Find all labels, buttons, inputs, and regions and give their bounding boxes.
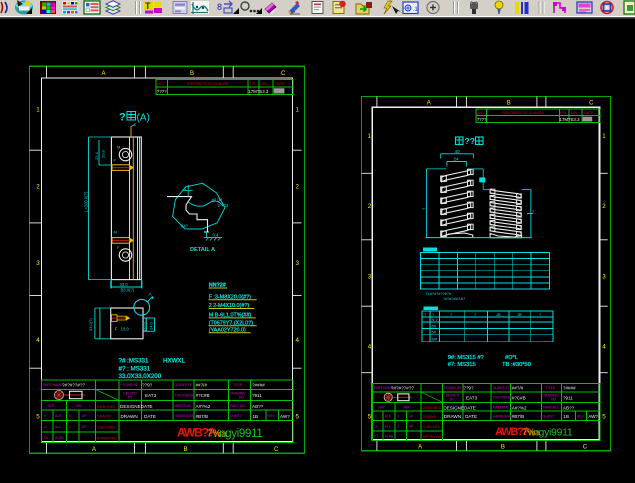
svg-text:APPROVED: APPROVED xyxy=(423,435,443,439)
svg-text:ALE: ALE xyxy=(55,414,62,418)
svg-text:AW?: AW? xyxy=(280,414,290,419)
svg-text:ALL: ALL xyxy=(55,425,61,429)
svg-text:(A): (A) xyxy=(137,113,150,124)
svg-text:8: 8 xyxy=(217,2,222,12)
svg-text:1: 1 xyxy=(296,107,300,114)
svg-text:.XX: .XX xyxy=(43,436,49,440)
svg-text:REV: REV xyxy=(577,414,585,418)
svg-text:.2: .2 xyxy=(396,424,399,428)
svg-text:##?/#: ##?/# xyxy=(196,383,208,388)
svg-text:?# :MS331: ?# :MS331 xyxy=(119,357,149,364)
svg-text:AF: AF xyxy=(82,425,86,429)
svg-text:3: 3 xyxy=(36,260,40,267)
svg-text:M: M xyxy=(114,230,117,235)
svg-text:JB: JB xyxy=(496,312,501,317)
svg-text:L=200.0(?): L=200.0(?) xyxy=(83,191,88,212)
svg-text:REV: REV xyxy=(268,414,276,418)
svg-text:CHECKED: CHECKED xyxy=(423,425,441,429)
svg-text:PART NO.: PART NO. xyxy=(543,405,559,409)
svg-text:EAT3: EAT3 xyxy=(145,393,157,398)
svg-text:APV: APV xyxy=(570,111,578,115)
svg-text:EAT3: EAT3 xyxy=(466,395,478,400)
svg-text:SHEET: SHEET xyxy=(543,414,554,418)
svg-text:ALBB: ALBB xyxy=(385,435,394,439)
svg-text:MM: MM xyxy=(76,404,82,408)
svg-text:.XX: .XX xyxy=(373,435,379,439)
svg-text:DESIGNEDATE: DESIGNEDATE xyxy=(443,405,476,410)
svg-text:SHEET: SHEET xyxy=(230,414,241,418)
svg-text:AW?: AW? xyxy=(588,414,598,419)
svg-text:#B7/B: #B7/B xyxy=(512,414,525,419)
svg-text:?#?#??#??: ?#?#??#?? xyxy=(391,386,414,391)
svg-text:C: C xyxy=(583,445,588,451)
svg-text:10.0: 10.0 xyxy=(121,327,130,332)
svg-text:M#: M# xyxy=(432,337,438,342)
svg-text:FOUND HE: FOUND HE xyxy=(444,386,462,390)
svg-text:9#: MS315 #?: 9#: MS315 #? xyxy=(448,355,485,361)
svg-text:TB :#30*50: TB :#30*50 xyxy=(502,362,531,368)
svg-text:DESIGNEDATE: DESIGNEDATE xyxy=(120,404,153,409)
svg-text:HXWXL: HXWXL xyxy=(163,357,186,364)
svg-text:ALE: ALE xyxy=(385,414,392,418)
svg-text:NO.: NO. xyxy=(239,395,245,399)
svg-text:40: 40 xyxy=(455,149,461,154)
svg-text:DRAWN: DRAWN xyxy=(121,414,138,419)
svg-text:5: 5 xyxy=(602,414,606,421)
svg-text:DRAWN: DRAWN xyxy=(444,414,461,419)
svg-text:.2: .2 xyxy=(68,425,71,429)
svg-text:MM: MM xyxy=(404,405,410,409)
svg-text:.3: .3 xyxy=(44,425,47,429)
svg-text:QUANTITY: QUANTITY xyxy=(175,383,193,387)
svg-text:T: T xyxy=(145,1,151,11)
svg-text:PART NO.: PART NO. xyxy=(230,404,246,408)
svg-text:?####: ?#### xyxy=(252,383,265,388)
svg-text:3: 3 xyxy=(296,260,300,267)
svg-text:SHT: SHT xyxy=(48,404,55,408)
svg-text:A#?%2: A#?%2 xyxy=(196,404,211,409)
svg-text:A#?%2: A#?%2 xyxy=(512,405,527,410)
svg-text:MATERIAL: MATERIAL xyxy=(175,404,192,408)
svg-text:CONTENTS OF CHANGE: CONTENTS OF CHANGE xyxy=(187,82,230,86)
svg-text:??9?: ??9? xyxy=(142,383,153,388)
svg-text:A: A xyxy=(149,292,152,297)
svg-text:SHT: SHT xyxy=(378,405,385,409)
svg-text:APV: APV xyxy=(260,82,268,86)
svg-text:B: B xyxy=(507,101,511,107)
svg-text:ALL: ALL xyxy=(385,424,391,428)
svg-text:N ?: N ? xyxy=(432,317,439,322)
svg-text:17M?S3.3: 17M?S3.3 xyxy=(248,89,269,94)
svg-text:2: 2 xyxy=(602,203,606,210)
svg-text:5#: 5# xyxy=(432,323,437,328)
svg-text:.1: .1 xyxy=(413,6,419,13)
svg-text:F: F xyxy=(134,123,137,128)
svg-text:NO.: NO. xyxy=(551,397,557,401)
svg-text:2-?03: 2-?03 xyxy=(218,203,229,208)
svg-text:?911: ?911 xyxy=(252,393,262,398)
svg-text:ngyi9911: ngyi9911 xyxy=(533,427,573,439)
svg-text:DATE: DATE xyxy=(465,414,477,419)
svg-text:#0.04: #0.04 xyxy=(212,198,223,203)
svg-text:25.4: 25.4 xyxy=(94,151,99,160)
svg-text:C: C xyxy=(589,101,594,107)
svg-text:F: F xyxy=(115,327,118,332)
svg-text:A: A xyxy=(418,445,422,451)
svg-text:1B: 1B xyxy=(563,414,569,419)
svg-text:AF: AF xyxy=(409,424,413,428)
svg-text:ngyi9911: ngyi9911 xyxy=(219,428,262,440)
svg-text:33.0(?): 33.0(?) xyxy=(88,318,93,331)
svg-text:??9?: ??9? xyxy=(463,386,474,391)
svg-text:TITLE: TITLE xyxy=(546,386,556,390)
svg-text:3: 3 xyxy=(368,273,372,280)
svg-text:BY: BY xyxy=(128,395,133,399)
svg-text:????: ???? xyxy=(477,117,487,122)
svg-text:#?C#B: #?C#B xyxy=(512,395,526,400)
svg-text:B3.0(?): B3.0(?) xyxy=(121,288,135,293)
svg-text:??: ?? xyxy=(465,136,475,146)
svg-text:#D*L: #D*L xyxy=(505,355,519,361)
svg-text:?: ? xyxy=(119,112,126,124)
svg-text:NO.: NO. xyxy=(158,82,164,86)
svg-text:C: C xyxy=(281,71,286,77)
svg-text:PART NAME: PART NAME xyxy=(43,383,63,387)
svg-text:24.0: 24.0 xyxy=(149,321,154,330)
svg-text:BY: BY xyxy=(450,397,455,401)
svg-text:?#?#??#??: ?#?#??#?? xyxy=(62,383,85,388)
svg-text:#? : MS331: #? : MS331 xyxy=(119,366,151,373)
svg-text:DATE: DATE xyxy=(584,111,594,115)
svg-text:1: 1 xyxy=(36,107,40,114)
svg-text:5: 5 xyxy=(36,414,40,421)
svg-text:P.R.: P.R. xyxy=(560,111,567,115)
svg-text:QUANTITY: QUANTITY xyxy=(493,386,511,390)
svg-text:0.4: 0.4 xyxy=(213,233,219,238)
svg-text:?911: ?911 xyxy=(563,395,573,400)
svg-text:AP: AP xyxy=(82,414,87,418)
svg-text:MATERIAL: MATERIAL xyxy=(493,405,510,409)
svg-text:TITLE: TITLE xyxy=(233,383,243,387)
svg-text:1: 1 xyxy=(602,133,606,140)
svg-text:4: 4 xyxy=(36,337,40,344)
svg-text:HARDNESS: HARDNESS xyxy=(175,414,195,418)
svg-text:DATE: DATE xyxy=(276,82,286,86)
svg-text:4: 4 xyxy=(368,344,372,351)
svg-text:2: 2 xyxy=(296,183,300,190)
svg-text:DATE: DATE xyxy=(144,414,156,419)
svg-text:4: 4 xyxy=(602,344,606,351)
svg-text:.3: .3 xyxy=(374,424,377,428)
svg-text:B: B xyxy=(190,71,194,77)
svg-text:##?/#: ##?/# xyxy=(512,386,524,391)
svg-text:CHECKED: CHECKED xyxy=(97,426,115,430)
svg-text:DESIGNED: DESIGNED xyxy=(423,406,442,410)
svg-text:20.8: 20.8 xyxy=(101,149,106,158)
svg-text:DRAWN: DRAWN xyxy=(97,415,111,419)
svg-text:APPROVED: APPROVED xyxy=(97,437,117,441)
svg-text:M: M xyxy=(117,145,120,150)
svg-text:HARDNESS: HARDNESS xyxy=(493,414,513,418)
svg-text:A: A xyxy=(92,447,96,453)
svg-text:5: 5 xyxy=(296,414,300,421)
svg-text:#?C#B: #?C#B xyxy=(196,393,210,398)
svg-text:#7: MS315: #7: MS315 xyxy=(448,362,476,368)
svg-text:A: A xyxy=(427,101,431,107)
svg-text:AB??: AB?? xyxy=(563,405,575,410)
svg-text:17M?S3.3: 17M?S3.3 xyxy=(560,117,581,122)
svg-text:CONTENTS OF CHANGE: CONTENTS OF CHANGE xyxy=(502,111,545,115)
svg-text:DETAIL A: DETAIL A xyxy=(190,247,215,253)
svg-text:????: ???? xyxy=(157,89,167,94)
svg-text:5: 5 xyxy=(368,414,372,421)
svg-text:2: 2 xyxy=(36,183,40,190)
svg-text:5#: 5# xyxy=(432,329,437,334)
svg-text:THICKNESS: THICKNESS xyxy=(175,394,195,398)
svg-text:DESIGNED: DESIGNED xyxy=(97,405,116,409)
svg-text:AB??: AB?? xyxy=(252,404,264,409)
svg-text:B: B xyxy=(501,445,505,451)
svg-text:C: C xyxy=(274,447,279,453)
svg-text:FOUND HE: FOUND HE xyxy=(121,383,139,387)
svg-text:A: A xyxy=(102,71,106,77)
svg-text:16.0: 16.0 xyxy=(141,321,146,330)
svg-text:3: 3 xyxy=(602,273,606,280)
svg-text:1: 1 xyxy=(368,133,372,140)
svg-text:33.0: 33.0 xyxy=(120,282,129,287)
svg-text:B: B xyxy=(184,447,188,453)
svg-text:24: 24 xyxy=(454,157,460,162)
svg-text:?####: ?#### xyxy=(563,386,576,391)
svg-text:24?: 24? xyxy=(181,223,189,228)
svg-text:?#?#?##?.#?: ?#?#?##?.#? xyxy=(443,297,465,301)
svg-text:ALBB: ALBB xyxy=(55,436,64,440)
svg-text:P.R.: P.R. xyxy=(249,82,256,86)
svg-text:JB: JB xyxy=(517,312,522,317)
svg-text:4: 4 xyxy=(296,337,300,344)
svg-text:THICKNESS: THICKNESS xyxy=(493,396,513,400)
svg-text:1B: 1B xyxy=(253,414,259,419)
svg-text:2: 2 xyxy=(368,203,372,210)
svg-text:33.0X33.0X200: 33.0X33.0X200 xyxy=(119,373,162,380)
svg-text:#B7/B: #B7/B xyxy=(196,414,209,419)
svg-text:AP: AP xyxy=(409,414,414,418)
svg-text:TL#?#?#??#?#: TL#?#?#??#?# xyxy=(425,292,451,296)
svg-text:DRAWN: DRAWN xyxy=(423,415,437,419)
svg-text:NO.: NO. xyxy=(477,111,483,115)
